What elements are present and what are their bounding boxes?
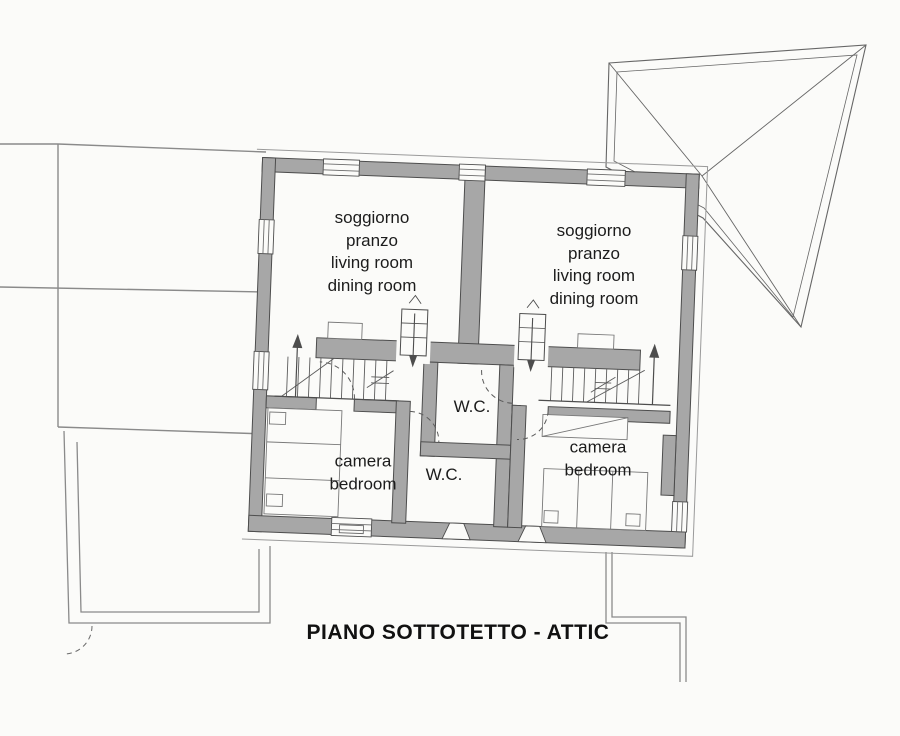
room-label-soggiorno-right: soggiorno pranzo living room dining room — [550, 220, 639, 310]
annex-door-arc — [64, 626, 92, 654]
wall-wc-bottom — [420, 442, 510, 459]
room-label-soggiorno-left: soggiorno pranzo living room dining room — [328, 207, 417, 297]
bottom-right-outline — [606, 552, 686, 682]
room-label-line: dining room — [550, 288, 639, 311]
room-label-bedroom-left: camera bedroom — [329, 451, 396, 496]
room-label-line: dining room — [328, 275, 417, 298]
room-label-line: living room — [328, 252, 417, 275]
room-label-wc-center: W.C. — [454, 396, 491, 419]
room-label-line: pranzo — [550, 243, 639, 266]
floor-plan-page: soggiorno pranzo living room dining room… — [0, 0, 900, 736]
window — [587, 169, 626, 186]
window — [672, 502, 688, 533]
window — [459, 164, 486, 181]
room-label-line: pranzo — [328, 230, 417, 253]
left-terrace-outline — [0, 144, 266, 434]
room-label-line: camera — [329, 451, 396, 474]
cabinet-soggiorno-right — [578, 334, 615, 349]
left-annex-outline — [64, 431, 270, 623]
room-label-line: living room — [550, 265, 639, 288]
room-label-bedroom-right: camera bedroom — [564, 437, 631, 482]
window — [253, 351, 269, 390]
window — [323, 159, 360, 176]
room-label-line: W.C. — [426, 464, 463, 487]
room-label-line: soggiorno — [550, 220, 639, 243]
room-label-line: bedroom — [329, 473, 396, 496]
plan-title: PIANO SOTTOTETTO - ATTIC — [307, 621, 610, 645]
window — [682, 236, 698, 271]
room-label-line: bedroom — [564, 459, 631, 482]
building — [242, 149, 708, 556]
room-label-line: soggiorno — [328, 207, 417, 230]
window — [258, 219, 274, 254]
room-label-wc-lower: W.C. — [426, 464, 463, 487]
window — [331, 517, 372, 537]
room-label-line: camera — [564, 437, 631, 460]
wall-right-jog — [661, 435, 676, 495]
cabinet-soggiorno-left — [328, 322, 363, 339]
room-label-line: W.C. — [454, 396, 491, 419]
